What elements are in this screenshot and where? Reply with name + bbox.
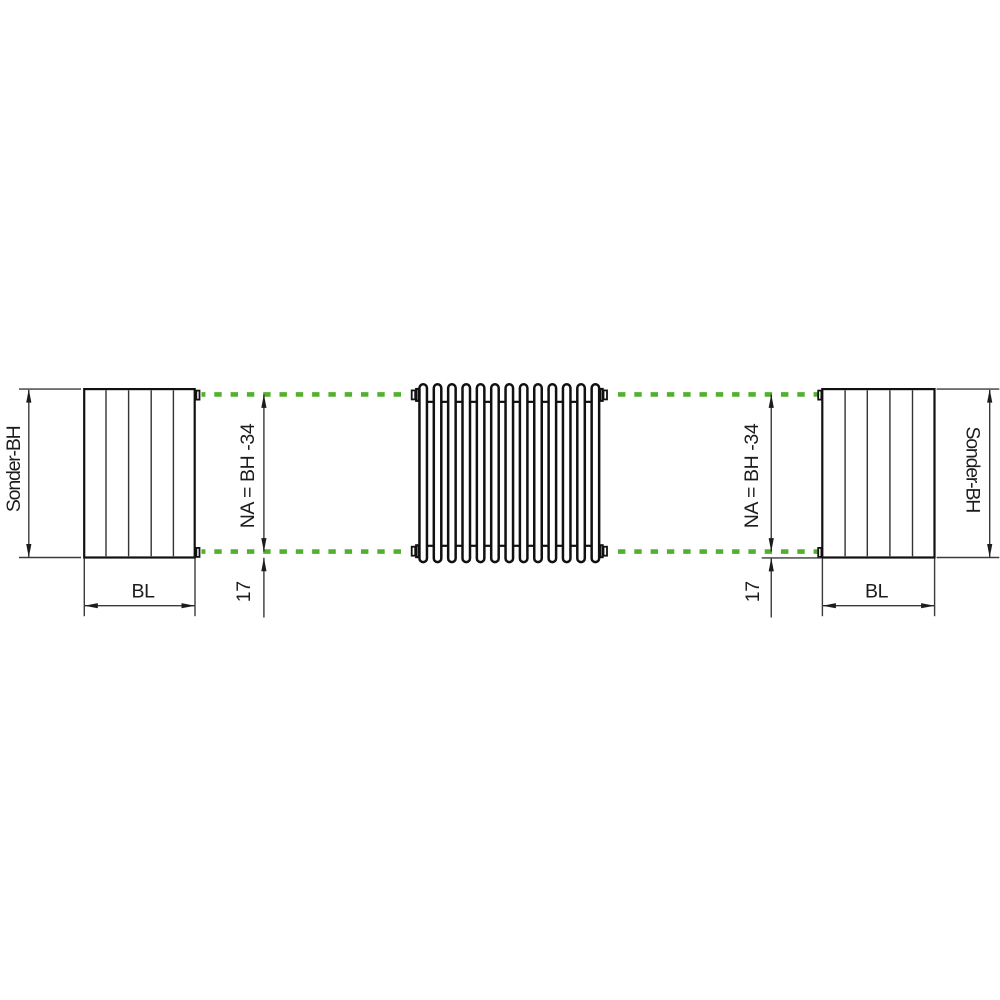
svg-text:Sonder-BH: Sonder-BH [3, 426, 25, 512]
svg-text:NA = BH -34: NA = BH -34 [237, 423, 259, 528]
svg-text:BL: BL [865, 580, 889, 602]
svg-text:17: 17 [233, 581, 255, 602]
svg-text:Sonder-BH: Sonder-BH [961, 426, 983, 512]
svg-text:17: 17 [742, 581, 764, 602]
svg-text:BL: BL [131, 580, 155, 602]
svg-text:NA = BH -34: NA = BH -34 [741, 423, 763, 528]
